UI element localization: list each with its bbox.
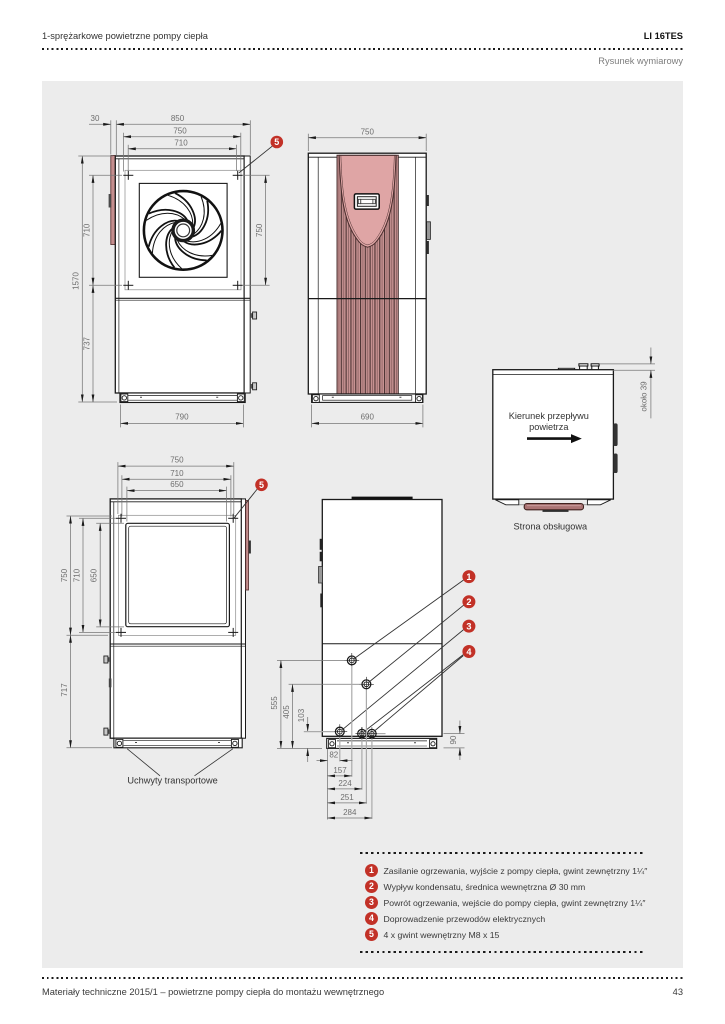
- svg-text:405: 405: [282, 705, 291, 719]
- svg-text:30: 30: [91, 114, 100, 123]
- svg-text:5: 5: [274, 137, 279, 147]
- svg-text:750: 750: [173, 126, 187, 135]
- svg-text:251: 251: [340, 793, 354, 802]
- svg-text:750: 750: [170, 456, 184, 465]
- svg-text:82: 82: [329, 751, 338, 760]
- svg-text:650: 650: [170, 480, 184, 489]
- svg-text:790: 790: [175, 412, 189, 421]
- svg-text:90: 90: [449, 735, 458, 744]
- svg-text:4: 4: [466, 647, 472, 657]
- svg-text:750: 750: [361, 127, 375, 136]
- svg-text:3: 3: [466, 622, 471, 632]
- svg-text:555: 555: [270, 696, 279, 710]
- svg-text:284: 284: [343, 808, 357, 817]
- svg-text:650: 650: [90, 568, 99, 582]
- svg-text:Strona obsługowa: Strona obsługowa: [514, 522, 588, 532]
- svg-text:750: 750: [60, 568, 69, 582]
- svg-text:powietrza: powietrza: [529, 422, 569, 432]
- svg-text:737: 737: [82, 336, 91, 350]
- svg-text:5: 5: [259, 480, 264, 490]
- svg-text:Kierunek przepływu: Kierunek przepływu: [509, 411, 589, 421]
- svg-text:710: 710: [174, 138, 188, 147]
- svg-text:750: 750: [255, 223, 264, 237]
- svg-text:710: 710: [72, 568, 81, 582]
- svg-text:710: 710: [170, 469, 184, 478]
- svg-text:710: 710: [82, 223, 91, 237]
- svg-text:224: 224: [338, 779, 352, 788]
- svg-text:850: 850: [171, 114, 185, 123]
- svg-text:1: 1: [466, 572, 471, 582]
- svg-text:103: 103: [297, 708, 306, 722]
- svg-text:1570: 1570: [72, 272, 81, 290]
- svg-text:około 39: około 39: [640, 381, 649, 412]
- svg-text:717: 717: [60, 683, 69, 697]
- svg-text:2: 2: [466, 597, 471, 607]
- svg-text:Uchwyty transportowe: Uchwyty transportowe: [127, 776, 217, 786]
- svg-text:157: 157: [333, 766, 347, 775]
- svg-text:690: 690: [361, 412, 375, 421]
